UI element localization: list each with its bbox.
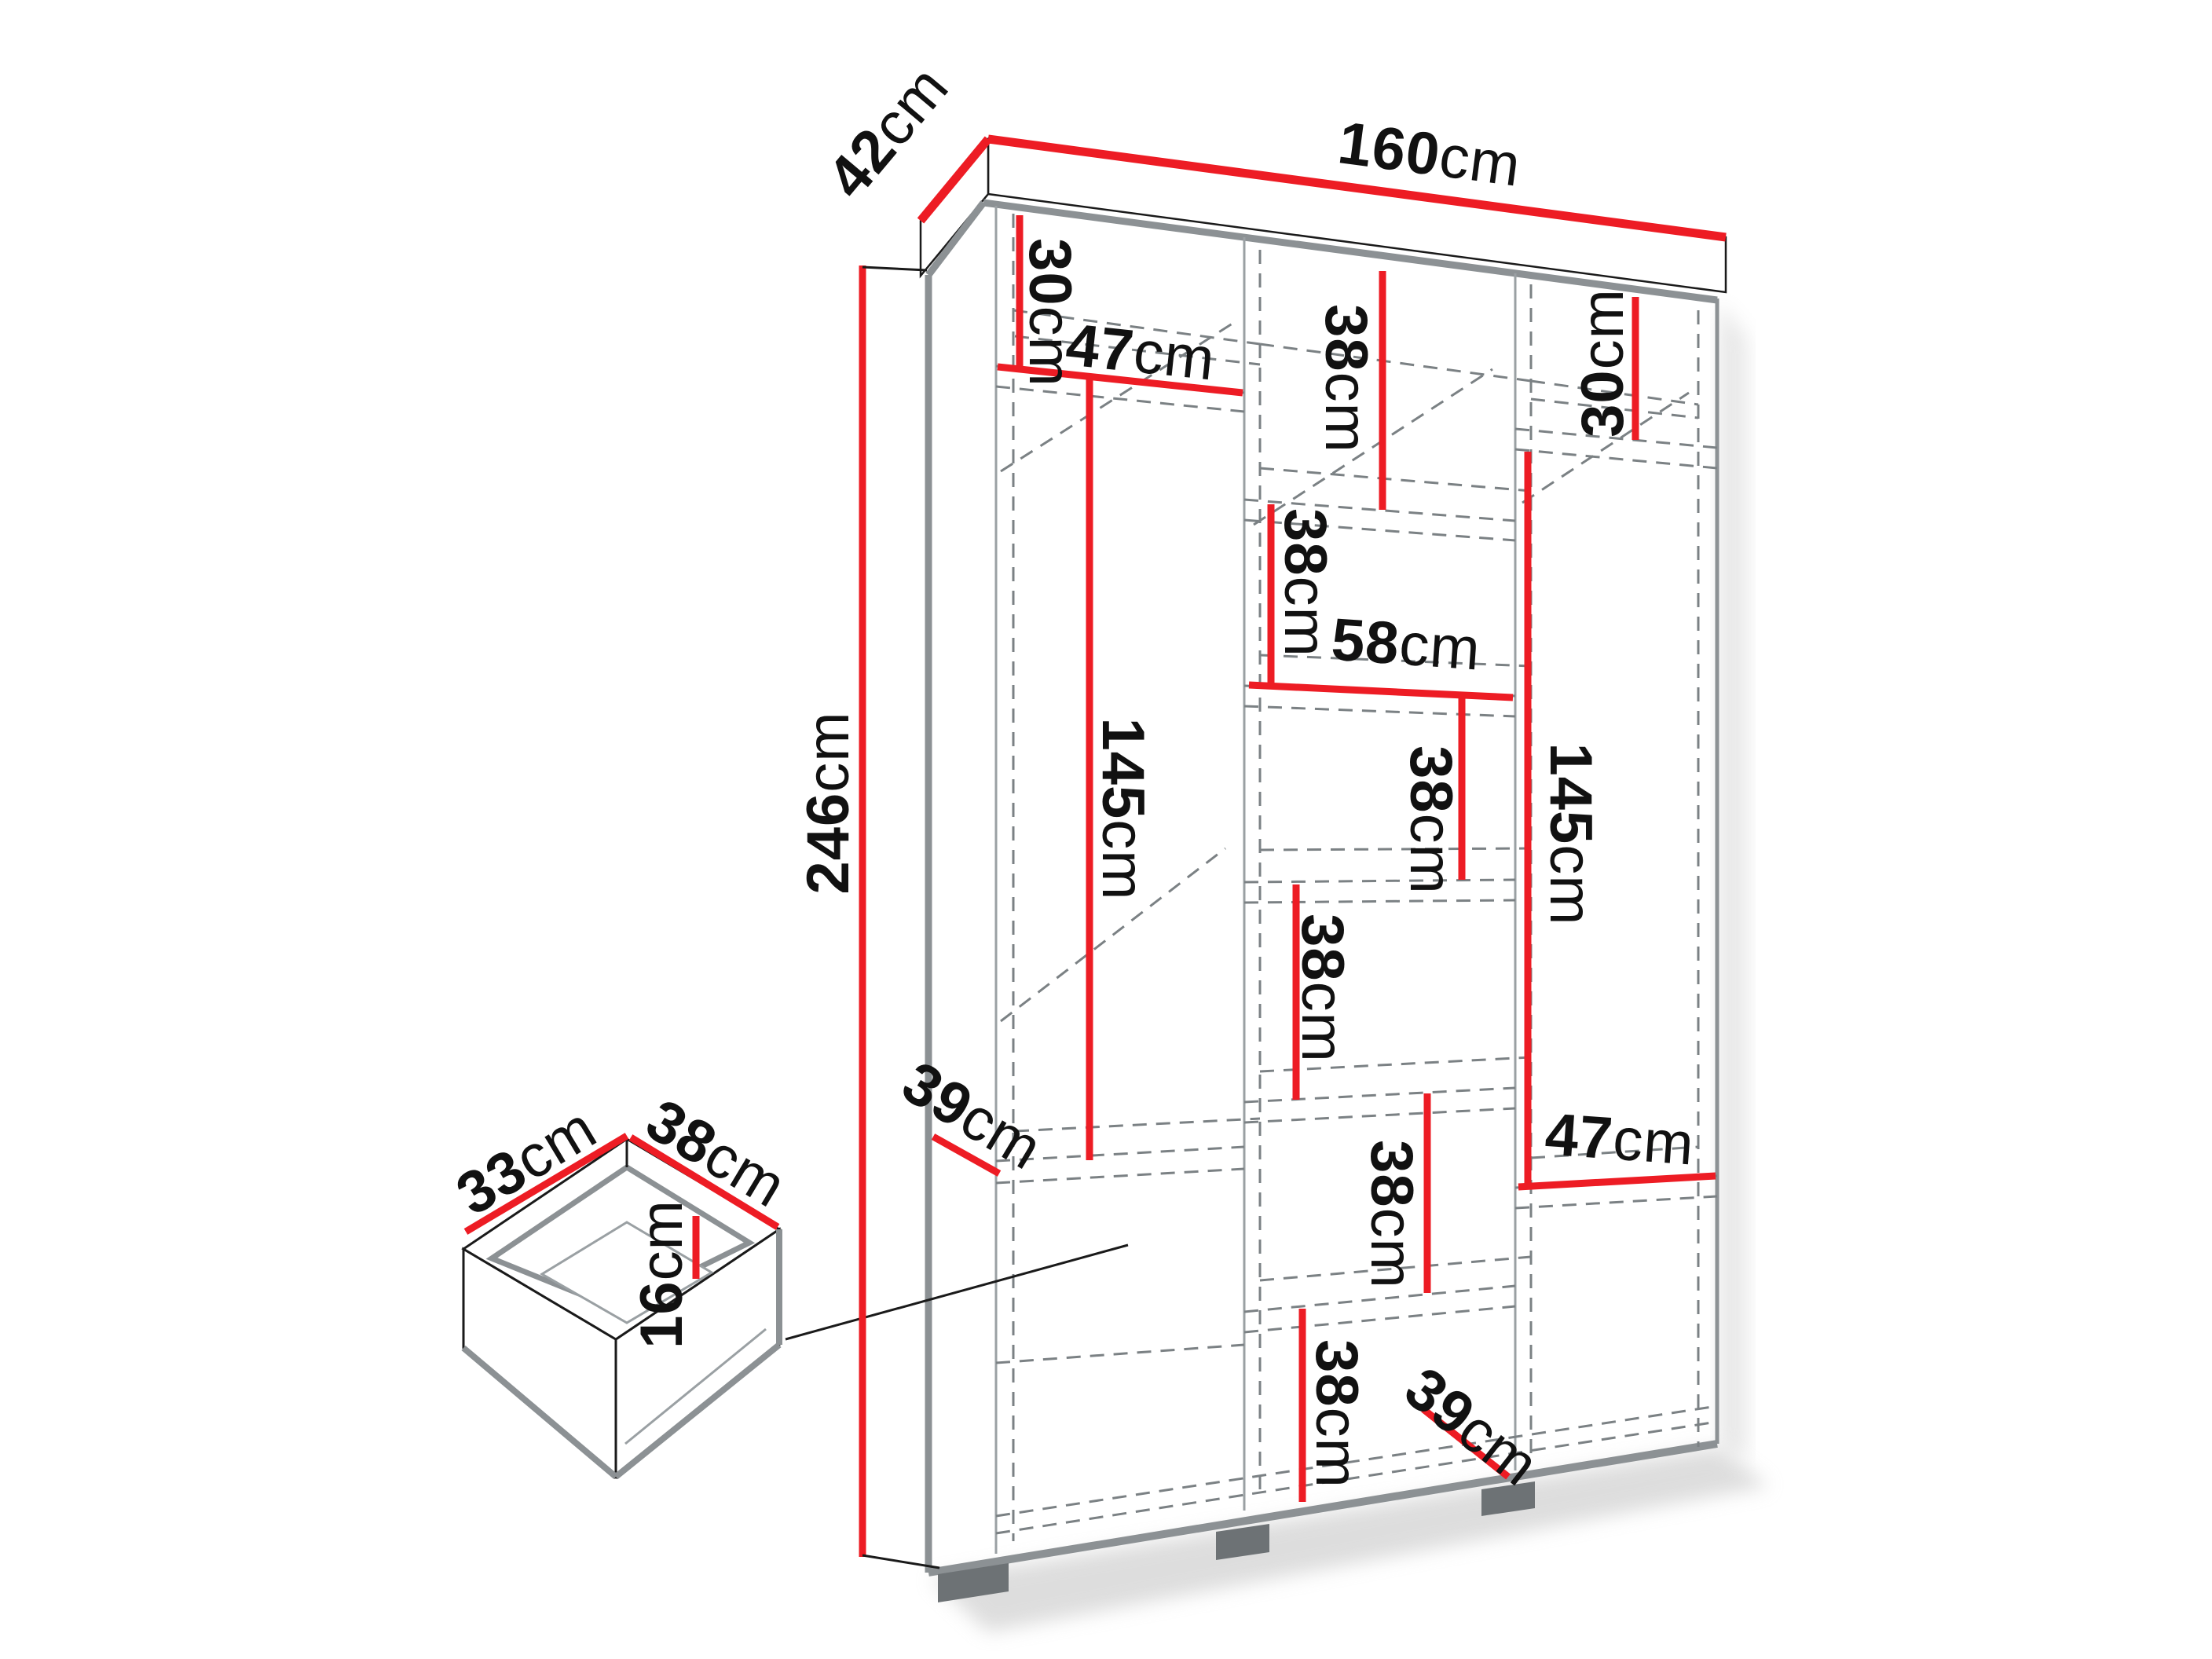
label-246: 246cm xyxy=(795,711,862,894)
label-38-m4: 38cm xyxy=(1290,914,1357,1063)
dim-line-47-right xyxy=(1518,1176,1716,1187)
label-16-drawer: 16cm xyxy=(628,1199,695,1349)
label-145-right: 145cm xyxy=(1538,742,1605,925)
tick-246-top xyxy=(862,267,927,270)
label-38-m5: 38cm xyxy=(1359,1140,1426,1289)
shelf-r2-thickness xyxy=(1515,1196,1717,1208)
shelf-r1-thickness xyxy=(1515,449,1717,468)
back-top-middle xyxy=(1260,344,1531,381)
label-47-right: 47cm xyxy=(1543,1101,1696,1177)
label-38-m2: 38cm xyxy=(1273,508,1339,657)
label-30-right: 30cm xyxy=(1569,288,1636,438)
label-42: 42cm xyxy=(814,53,961,211)
shelf-left-drawer-thickness xyxy=(996,1169,1244,1183)
wardrobe-drawing: 160cm 42cm 246cm 30cm 47cm 145cm 39cm 38… xyxy=(0,0,2212,1659)
shelf-m4-front xyxy=(1244,1088,1515,1102)
shelf-m5-thickness xyxy=(1244,1306,1515,1332)
shelf-m4-thickness xyxy=(1244,1108,1515,1122)
drawer-detail xyxy=(463,1139,1128,1477)
dimension-diagram: 160cm 42cm 246cm 30cm 47cm 145cm 39cm 38… xyxy=(0,0,2212,1659)
drawer-divider xyxy=(996,1345,1244,1363)
label-58: 58cm xyxy=(1329,606,1482,683)
label-38-m1: 38cm xyxy=(1313,304,1380,453)
shelf-m5-front xyxy=(1244,1286,1515,1312)
label-38-m6: 38cm xyxy=(1304,1339,1371,1489)
dim-line-58 xyxy=(1249,685,1513,698)
shelf-m3-back xyxy=(1260,848,1531,850)
shelf-m3-front xyxy=(1244,880,1515,882)
shelf-m1-back xyxy=(1260,468,1531,491)
shelf-m3-thickness xyxy=(1244,900,1515,903)
label-145-left: 145cm xyxy=(1090,717,1157,900)
shelf-m2-thickness xyxy=(1244,706,1515,716)
label-38-m3: 38cm xyxy=(1398,745,1465,895)
pointer-line xyxy=(786,1245,1128,1339)
